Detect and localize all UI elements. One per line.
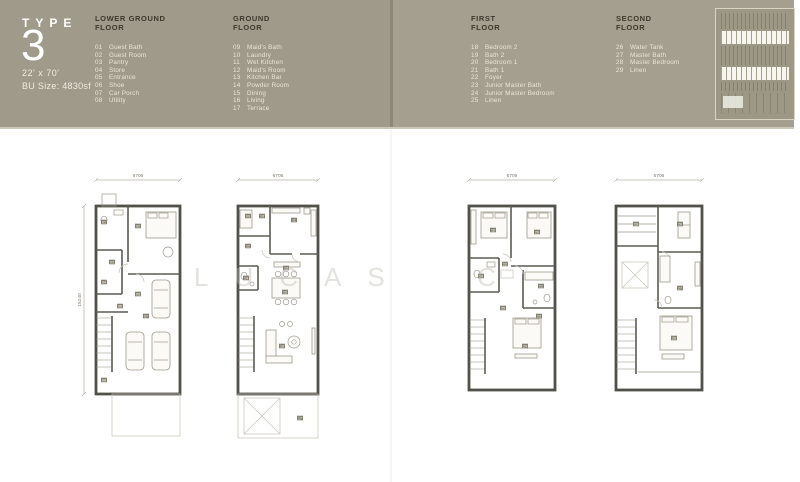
legend-item-number: 06 [95,82,109,90]
legend-item: 21 Bath 1 [471,67,601,75]
legend-item-number: 22 [471,74,485,82]
legend-item: 06 Shoe [95,82,225,90]
site-plan-highlighted-row [721,67,789,80]
svg-text:10: 10 [260,214,264,218]
legend-item-number: 14 [233,82,247,90]
svg-text:01: 01 [102,220,106,224]
legend-item-name: Guest Room [109,52,146,60]
legend-list: 18 Bedroom 2 19 Bath 2 20 Bedroom 1 21 B… [471,44,601,105]
svg-text:25: 25 [501,306,505,310]
site-plan-highlighted-row [721,31,789,44]
legend-item-name: Bedroom 2 [485,44,518,52]
legend-item-name: Powder Room [247,82,289,90]
legend-item-name: Master Bath [630,52,666,60]
legend-item-number: 16 [233,97,247,105]
legend-item-name: Linen [630,67,646,75]
legend-item-name: Living [247,97,265,105]
svg-text:16: 16 [280,344,284,348]
site-key-plan [715,8,795,120]
legend-item-name: Master Bedroom [630,59,679,67]
legend-item-number: 03 [95,59,109,67]
legend-title-line: LOWER GROUND [95,14,225,23]
legend-item-name: Store [109,67,125,75]
legend-item: 09 Maid's Bath [233,44,363,52]
legend-item: 19 Bath 2 [471,52,601,60]
legend-item-name: Guest Bath [109,44,143,52]
legend-item-name: Junior Master Bath [485,82,541,90]
legend-item-number: 17 [233,105,247,113]
legend-item-name: Bath 1 [485,67,504,75]
svg-text:23: 23 [537,314,541,318]
floor-plan-ground: 6706 [222,166,322,458]
legend-item-number: 07 [95,90,109,98]
legend-item-number: 10 [233,52,247,60]
legend-item: 05 Entrance [95,74,225,82]
legend-item-number: 28 [616,59,630,67]
legend-item-name: Entrance [109,74,136,82]
legend-title-line: FLOOR [471,23,601,32]
dimension-top: 6706 [467,173,557,182]
legend-item-name: Wet Kitchen [247,59,283,67]
legend-item-number: 01 [95,44,109,52]
legend-item-name: Linen [485,97,501,105]
legend-title-line: FIRST [471,14,601,23]
legend-title-line: FLOOR [95,23,225,32]
legend-item: 03 Pantry [95,59,225,67]
legend-item-name: Foyer [485,74,502,82]
legend-item-number: 09 [233,44,247,52]
svg-text:26: 26 [678,222,682,226]
site-plan-unit-row [721,82,789,91]
svg-text:02: 02 [136,224,140,228]
dim-width-label: 6706 [507,173,518,179]
legend-item-number: 08 [95,97,109,105]
dim-width-label: 6706 [654,173,665,179]
walls [238,206,318,394]
legend-item: 10 Laundry [233,52,363,60]
svg-text:04: 04 [102,280,106,284]
legend-item-name: Water Tank [630,44,664,52]
site-plan-highlight-block [723,96,743,108]
legend-item-number: 21 [471,67,485,75]
floor-plan-lower-ground: 6706 15240 [76,166,188,458]
legend-item: 22 Foyer [471,74,601,82]
legend-item-number: 12 [233,67,247,75]
legend-item: 12 Maid's Room [233,67,363,75]
legend-item-number: 25 [471,97,485,105]
svg-text:11: 11 [292,218,296,222]
legend-item-name: Car Porch [109,90,139,98]
svg-text:27: 27 [678,286,682,290]
legend-item-name: Terrace [247,105,269,113]
legend-item-number: 04 [95,67,109,75]
svg-text:20: 20 [535,230,539,234]
legend-item: 14 Powder Room [233,82,363,90]
legend-item: 08 Utility [95,97,225,105]
legend-item-number: 27 [616,52,630,60]
legend-item-name: Dining [247,90,266,98]
dimension-top: 6706 [614,173,704,182]
legend-item-number: 11 [233,59,247,67]
legend-item-number: 24 [471,90,485,98]
built-up-size: BU Size: 4830sf [22,81,91,91]
legend-item-number: 20 [471,59,485,67]
svg-text:09: 09 [246,214,250,218]
svg-text:12: 12 [246,244,250,248]
site-plan-unit-row [721,46,789,65]
page-spine-shadow [390,129,392,482]
svg-text:29: 29 [634,222,638,226]
driveway-outline [112,394,180,436]
type-number: 3 [21,24,45,68]
dimension-left: 15240 [77,204,86,396]
dim-width-label: 6706 [133,173,144,179]
dimension-top: 6706 [94,173,182,182]
legend-item: 11 Wet Kitchen [233,59,363,67]
legend-item-name: Junior Master Bedroom [485,90,555,98]
legend-item: 02 Guest Room [95,52,225,60]
legend-item: 18 Bedroom 2 [471,44,601,52]
legend-title-line: GROUND [233,14,363,23]
legend-first-floor: FIRST FLOOR 18 Bedroom 2 19 Bath 2 20 Be… [471,14,601,105]
legend-item: 01 Guest Bath [95,44,225,52]
legend-item-name: Kitchen Bar [247,74,282,82]
legend-item: 04 Store [95,67,225,75]
maid-room-bed [240,210,252,228]
svg-text:03: 03 [110,260,114,264]
legend-item-number: 13 [233,74,247,82]
svg-text:05: 05 [136,292,140,296]
terrace [238,394,318,438]
dim-width-label: 6706 [273,173,284,179]
legend-list: 09 Maid's Bath 10 Laundry 11 Wet Kitchen… [233,44,363,112]
legend-item: 24 Junior Master Bedroom [471,90,601,98]
legend-item: 07 Car Porch [95,90,225,98]
svg-text:24: 24 [523,344,527,348]
legend-title-line: FLOOR [233,23,363,32]
legend-item-name: Bath 2 [485,52,504,60]
legend-item: 15 Dining [233,90,363,98]
legend-item: 17 Terrace [233,105,363,113]
legend-item-name: Laundry [247,52,271,60]
legend-item-number: 19 [471,52,485,60]
legend-item-name: Pantry [109,59,128,67]
legend-item-number: 26 [616,44,630,52]
svg-text:07: 07 [144,314,148,318]
legend-item-number: 05 [95,74,109,82]
legend-item-number: 29 [616,67,630,75]
svg-text:21: 21 [539,284,543,288]
legend-item: 16 Living [233,97,363,105]
site-plan-unit-row [721,13,789,29]
legend-item-name: Maid's Bath [247,44,282,52]
site-plan-facilities-row [721,93,789,113]
legend-item-number: 23 [471,82,485,90]
dim-depth-label: 15240 [77,293,83,307]
legend-item: 25 Linen [471,97,601,105]
legend-item-name: Shoe [109,82,125,90]
legend-item-number: 18 [471,44,485,52]
legend-item-number: 02 [95,52,109,60]
legend-lower-ground-floor: LOWER GROUND FLOOR 01 Guest Bath 02 Gues… [95,14,225,105]
legend-item-name: Maid's Room [247,67,286,75]
svg-text:18: 18 [491,228,495,232]
legend-item-name: Bedroom 1 [485,59,518,67]
svg-text:06: 06 [118,304,122,308]
legend-ground-floor: GROUND FLOOR 09 Maid's Bath 10 Laundry 1… [233,14,363,112]
svg-text:28: 28 [672,336,676,340]
svg-text:17: 17 [298,416,302,420]
legend-item: 20 Bedroom 1 [471,59,601,67]
legend-item-name: Utility [109,97,126,105]
legend-item: 23 Junior Master Bath [471,82,601,90]
unit-size: 22' x 70' [22,68,59,78]
dimension-top: 6706 [236,173,320,182]
header-band: TYPE 3 22' x 70' BU Size: 4830sf LOWER G… [0,0,794,129]
legend-item-number: 15 [233,90,247,98]
legend-list: 01 Guest Bath 02 Guest Room 03 Pantry 04… [95,44,225,105]
svg-text:08: 08 [102,378,106,382]
watermark-text: LUCAS C [194,262,522,293]
legend-item: 13 Kitchen Bar [233,74,363,82]
floor-plan-second: 6706 26 27 28 29 [600,166,705,406]
